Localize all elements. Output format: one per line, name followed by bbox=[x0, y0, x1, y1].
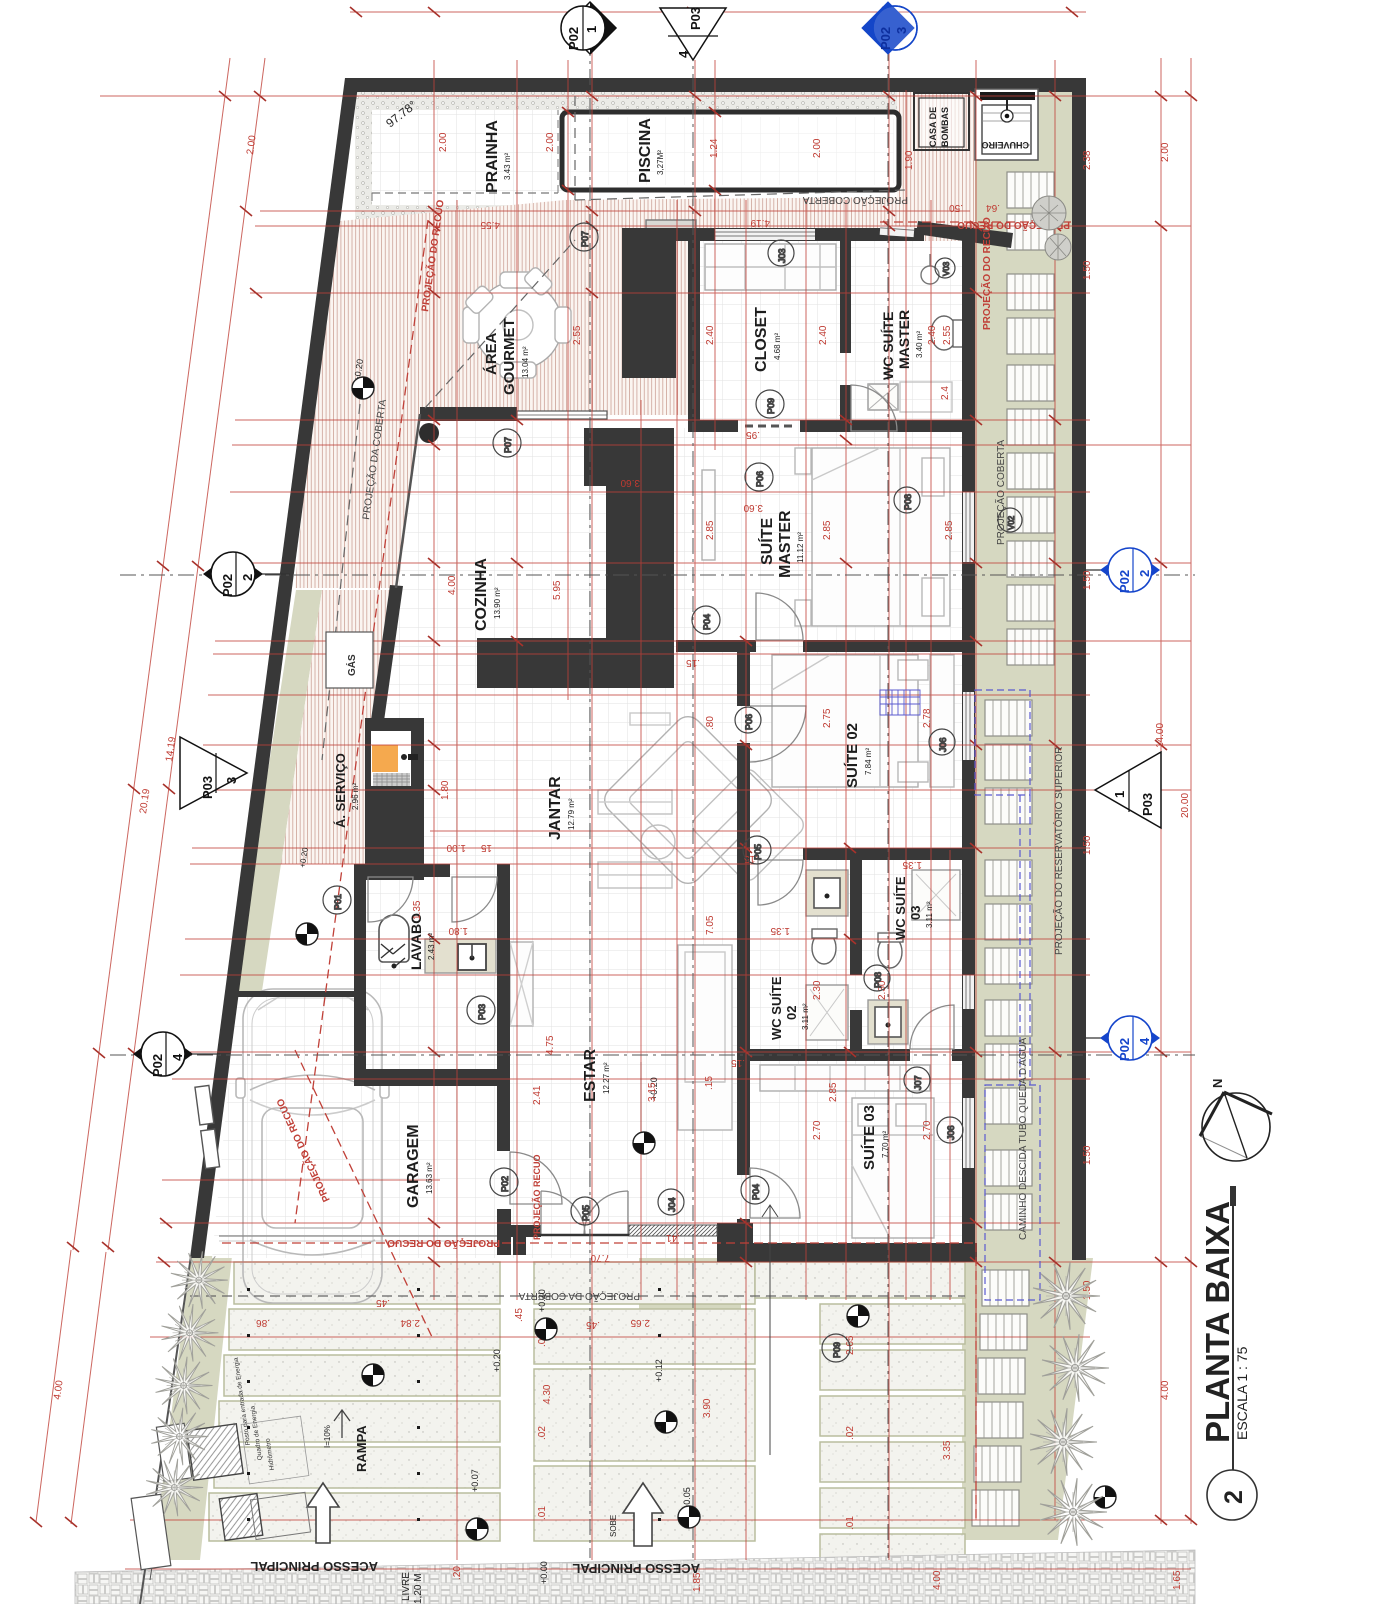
svg-text:ACESSO PRINCIPAL: ACESSO PRINCIPAL bbox=[572, 1561, 700, 1576]
svg-text:12.79 m²: 12.79 m² bbox=[567, 798, 576, 830]
svg-text:SUÍTE: SUÍTE bbox=[757, 518, 776, 565]
svg-text:4.00: 4.00 bbox=[447, 575, 458, 595]
svg-text:1.24: 1.24 bbox=[709, 138, 720, 158]
svg-text:13.90 m²: 13.90 m² bbox=[493, 587, 502, 619]
svg-text:13.63 m²: 13.63 m² bbox=[425, 1162, 434, 1194]
svg-text:.20: .20 bbox=[452, 1566, 463, 1580]
svg-text:CHUVEIRO: CHUVEIRO bbox=[981, 140, 1029, 150]
svg-text:.45: .45 bbox=[376, 1297, 390, 1308]
svg-text:3.11 m²: 3.11 m² bbox=[801, 1003, 810, 1030]
svg-text:P02: P02 bbox=[566, 27, 581, 50]
svg-text:P03: P03 bbox=[688, 7, 703, 30]
svg-text:.95: .95 bbox=[746, 429, 760, 440]
svg-text:P02: P02 bbox=[1117, 570, 1132, 593]
svg-text:P08: P08 bbox=[873, 972, 883, 988]
svg-text:2.40: 2.40 bbox=[818, 325, 829, 345]
svg-text:LIVRE: LIVRE bbox=[401, 1572, 412, 1601]
svg-text:I=10%: I=10% bbox=[323, 1425, 332, 1448]
svg-text:.01: .01 bbox=[845, 1516, 856, 1530]
svg-text:PROJEÇÃO DO RECUO: PROJEÇÃO DO RECUO bbox=[980, 217, 993, 330]
svg-text:P06: P06 bbox=[744, 714, 754, 730]
svg-text:1: 1 bbox=[584, 26, 599, 33]
svg-text:4.30: 4.30 bbox=[542, 1384, 553, 1404]
svg-text:J07: J07 bbox=[913, 1075, 923, 1090]
svg-text:WC SUÍTE: WC SUÍTE bbox=[769, 976, 784, 1040]
svg-text:P03: P03 bbox=[477, 1004, 487, 1020]
svg-text:ÁREA: ÁREA bbox=[483, 332, 500, 375]
svg-text:2: 2 bbox=[1220, 1490, 1248, 1504]
svg-text:2.40: 2.40 bbox=[705, 325, 716, 345]
svg-text:PROJEÇÃO DO RESERVATÓRIO SUPER: PROJEÇÃO DO RESERVATÓRIO SUPERIOR bbox=[1052, 747, 1065, 955]
svg-text:SOBE: SOBE bbox=[609, 1515, 618, 1537]
svg-text:+0.07: +0.07 bbox=[470, 1469, 480, 1492]
svg-text:P05: P05 bbox=[753, 844, 763, 860]
svg-text:1.80: 1.80 bbox=[440, 780, 451, 800]
svg-text:+0.20: +0.20 bbox=[492, 1349, 502, 1372]
svg-text:1.35: 1.35 bbox=[902, 859, 922, 870]
svg-text:4: 4 bbox=[1137, 1037, 1152, 1045]
svg-text:02: 02 bbox=[784, 1006, 799, 1020]
svg-text:.02: .02 bbox=[537, 1426, 548, 1440]
svg-text:2.30: 2.30 bbox=[812, 980, 823, 1000]
svg-text:J04: J04 bbox=[667, 1197, 677, 1212]
svg-text:PROJEÇÃO DO RECUO: PROJEÇÃO DO RECUO bbox=[387, 1237, 500, 1250]
svg-text:7.70: 7.70 bbox=[590, 1252, 610, 1263]
svg-text:7.84 m²: 7.84 m² bbox=[864, 748, 873, 775]
svg-text:P05: P05 bbox=[581, 1205, 591, 1221]
svg-text:MASTER: MASTER bbox=[777, 510, 794, 578]
svg-text:14.00: 14.00 bbox=[1155, 723, 1166, 748]
svg-text:2.00: 2.00 bbox=[812, 138, 823, 158]
svg-text:PROJEÇÃO RECUO: PROJEÇÃO RECUO bbox=[532, 1154, 542, 1240]
svg-text:1.50: 1.50 bbox=[1082, 260, 1093, 280]
svg-text:3.35: 3.35 bbox=[942, 1440, 953, 1460]
svg-text:.45: .45 bbox=[514, 1308, 525, 1322]
svg-text:.64: .64 bbox=[986, 202, 1000, 213]
svg-text:GARAGEM: GARAGEM bbox=[405, 1124, 422, 1208]
svg-text:2.70: 2.70 bbox=[812, 1120, 823, 1140]
svg-text:1.50: 1.50 bbox=[1082, 1145, 1093, 1165]
svg-text:.86: .86 bbox=[256, 1317, 270, 1328]
svg-text:P02: P02 bbox=[878, 27, 893, 50]
svg-text:2.85: 2.85 bbox=[828, 1082, 839, 1102]
svg-text:3: 3 bbox=[894, 27, 909, 34]
svg-text:3.15: 3.15 bbox=[647, 1082, 658, 1102]
svg-text:.15: .15 bbox=[686, 657, 700, 668]
svg-text:ESTAR: ESTAR bbox=[582, 1049, 599, 1102]
svg-text:4.19: 4.19 bbox=[750, 217, 770, 228]
svg-text:LAVABO: LAVABO bbox=[408, 913, 424, 970]
svg-text:2.00: 2.00 bbox=[545, 132, 556, 152]
svg-text:4.75: 4.75 bbox=[545, 1035, 556, 1055]
svg-text:2: 2 bbox=[240, 574, 255, 581]
svg-text:.15: .15 bbox=[704, 1076, 715, 1090]
svg-text:2.41: 2.41 bbox=[532, 1085, 543, 1105]
svg-text:V03: V03 bbox=[942, 261, 951, 276]
svg-text:12.27 m²: 12.27 m² bbox=[602, 1062, 611, 1094]
svg-text:2.4: 2.4 bbox=[940, 386, 951, 400]
svg-text:13.04 m²: 13.04 m² bbox=[521, 346, 530, 378]
svg-text:BOMBAS: BOMBAS bbox=[940, 107, 950, 147]
svg-text:3.40 m²: 3.40 m² bbox=[915, 331, 924, 358]
svg-text:1.50: 1.50 bbox=[1082, 570, 1093, 590]
svg-text:.45: .45 bbox=[586, 1319, 600, 1330]
svg-text:P01: P01 bbox=[333, 894, 343, 910]
svg-text:Á. SERVIÇO: Á. SERVIÇO bbox=[333, 753, 348, 828]
svg-text:2.96 m²: 2.96 m² bbox=[351, 783, 360, 810]
svg-text:3.60: 3.60 bbox=[743, 502, 763, 513]
svg-text:1.65: 1.65 bbox=[1172, 1570, 1183, 1590]
svg-text:2.85: 2.85 bbox=[822, 520, 833, 540]
svg-text:4.00: 4.00 bbox=[932, 1570, 943, 1590]
svg-text:2: 2 bbox=[1137, 570, 1152, 577]
svg-text:+0.00: +0.00 bbox=[539, 1561, 549, 1584]
svg-text:P03: P03 bbox=[200, 776, 215, 799]
svg-text:V02: V02 bbox=[1007, 515, 1016, 530]
svg-text:2.43 m²: 2.43 m² bbox=[427, 933, 436, 960]
svg-text:P06: P06 bbox=[755, 471, 765, 487]
svg-text:3: 3 bbox=[224, 777, 239, 784]
svg-text:P02: P02 bbox=[150, 1054, 165, 1077]
svg-text:P09: P09 bbox=[832, 1342, 842, 1358]
svg-text:20.00: 20.00 bbox=[1180, 793, 1191, 818]
svg-text:P02: P02 bbox=[220, 574, 235, 597]
svg-text:1.90: 1.90 bbox=[904, 150, 915, 170]
svg-text:PRAINHA: PRAINHA bbox=[484, 120, 501, 193]
svg-text:2.78: 2.78 bbox=[922, 708, 933, 728]
svg-text:3.43 m²: 3.43 m² bbox=[503, 153, 512, 180]
svg-text:1.00: 1.00 bbox=[446, 842, 466, 853]
svg-text:2.00: 2.00 bbox=[1160, 142, 1171, 162]
svg-text:2.85: 2.85 bbox=[705, 520, 716, 540]
svg-text:P03: P03 bbox=[1140, 793, 1155, 816]
svg-text:1.35: 1.35 bbox=[770, 925, 790, 936]
svg-text:P07: P07 bbox=[580, 231, 590, 247]
svg-text:4.00: 4.00 bbox=[1160, 1380, 1171, 1400]
svg-text:MASTER: MASTER bbox=[896, 310, 912, 369]
svg-text:+0.20: +0.20 bbox=[537, 1289, 547, 1312]
svg-text:2.38: 2.38 bbox=[1082, 150, 1093, 170]
svg-text:.41: .41 bbox=[666, 1232, 680, 1243]
svg-text:PROJEÇÃO COBERTA: PROJEÇÃO COBERTA bbox=[802, 194, 908, 207]
svg-text:GOURMET: GOURMET bbox=[501, 318, 518, 395]
svg-text:5.95: 5.95 bbox=[552, 580, 563, 600]
svg-text:03: 03 bbox=[908, 906, 923, 920]
svg-text:2.40: 2.40 bbox=[927, 325, 938, 345]
svg-text:ESCALA 1 : 75: ESCALA 1 : 75 bbox=[1234, 1346, 1250, 1440]
svg-text:P02: P02 bbox=[500, 1176, 510, 1192]
svg-text:.80: .80 bbox=[705, 716, 716, 730]
svg-text:2.84: 2.84 bbox=[400, 1317, 420, 1328]
svg-text:2.00: 2.00 bbox=[438, 132, 449, 152]
svg-text:11.12 m²: 11.12 m² bbox=[796, 532, 805, 563]
svg-text:4: 4 bbox=[170, 1053, 185, 1061]
svg-text:P08: P08 bbox=[903, 494, 913, 510]
svg-text:PLANTA BAIXA: PLANTA BAIXA bbox=[1199, 1201, 1236, 1443]
svg-text:2.55: 2.55 bbox=[942, 325, 953, 345]
svg-text:CASA DE: CASA DE bbox=[928, 107, 938, 147]
svg-text:COZINHA: COZINHA bbox=[473, 558, 490, 631]
svg-text:7.70 m²: 7.70 m² bbox=[881, 1131, 890, 1158]
svg-text:WC SUÍTE: WC SUÍTE bbox=[880, 312, 896, 380]
svg-text:P04: P04 bbox=[751, 1184, 761, 1200]
svg-text:WC SUÍTE: WC SUÍTE bbox=[893, 876, 908, 940]
svg-text:2.70: 2.70 bbox=[922, 1120, 933, 1140]
svg-text:3.11 m²: 3.11 m² bbox=[925, 901, 934, 928]
svg-text:.50: .50 bbox=[949, 202, 963, 213]
svg-text:.01: .01 bbox=[537, 1506, 548, 1520]
svg-text:P02: P02 bbox=[1117, 1038, 1132, 1061]
svg-text:1.85: 1.85 bbox=[692, 1572, 703, 1592]
svg-text:PISCINA: PISCINA bbox=[637, 118, 654, 183]
svg-text:J03: J03 bbox=[777, 248, 787, 263]
svg-text:SUÍTE 03: SUÍTE 03 bbox=[861, 1105, 878, 1170]
svg-text:4.55: 4.55 bbox=[480, 219, 500, 230]
svg-text:CLOSET: CLOSET bbox=[753, 307, 770, 372]
svg-text:CAMINHO DESCIDA TUBO QUEDA D'Á: CAMINHO DESCIDA TUBO QUEDA D'ÁGUA bbox=[1016, 1037, 1029, 1240]
svg-text:4.68 m²: 4.68 m² bbox=[773, 333, 782, 360]
svg-text:ACESSO PRINCIPAL: ACESSO PRINCIPAL bbox=[250, 1559, 378, 1574]
svg-text:J06: J06 bbox=[938, 737, 948, 752]
svg-text:RAMPA: RAMPA bbox=[354, 1425, 369, 1472]
svg-text:1,20 M: 1,20 M bbox=[413, 1573, 424, 1604]
svg-text:PROJEÇÃO COBERTA: PROJEÇÃO COBERTA bbox=[994, 439, 1007, 545]
svg-text:1.50: 1.50 bbox=[1082, 835, 1093, 855]
svg-text:1.80: 1.80 bbox=[448, 925, 468, 936]
svg-text:1.35: 1.35 bbox=[412, 900, 423, 920]
svg-text:3.60: 3.60 bbox=[620, 477, 640, 488]
svg-text:4: 4 bbox=[676, 50, 691, 58]
svg-text:7.05: 7.05 bbox=[705, 915, 716, 935]
svg-text:3,27M²: 3,27M² bbox=[656, 150, 665, 175]
svg-text:GÁS: GÁS bbox=[345, 654, 358, 676]
svg-text:SUÍTE 02: SUÍTE 02 bbox=[844, 723, 861, 788]
svg-text:.02: .02 bbox=[845, 1426, 856, 1440]
svg-text:N: N bbox=[1210, 1079, 1225, 1088]
svg-text:3.90: 3.90 bbox=[702, 1398, 713, 1418]
svg-text:P04: P04 bbox=[702, 614, 712, 630]
svg-text:.15: .15 bbox=[731, 1057, 745, 1068]
svg-text:JANTAR: JANTAR bbox=[547, 776, 564, 840]
svg-text:J06: J06 bbox=[946, 1125, 956, 1140]
svg-text:1: 1 bbox=[1112, 791, 1127, 798]
svg-text:2.85: 2.85 bbox=[944, 520, 955, 540]
svg-text:P07: P07 bbox=[503, 437, 513, 453]
svg-text:15: 15 bbox=[480, 842, 492, 853]
svg-text:P09: P09 bbox=[766, 398, 776, 414]
svg-text:2.65: 2.65 bbox=[630, 1317, 650, 1328]
svg-text:2.75: 2.75 bbox=[822, 708, 833, 728]
svg-text:2.55: 2.55 bbox=[572, 325, 583, 345]
svg-text:+0.12: +0.12 bbox=[654, 1359, 664, 1382]
